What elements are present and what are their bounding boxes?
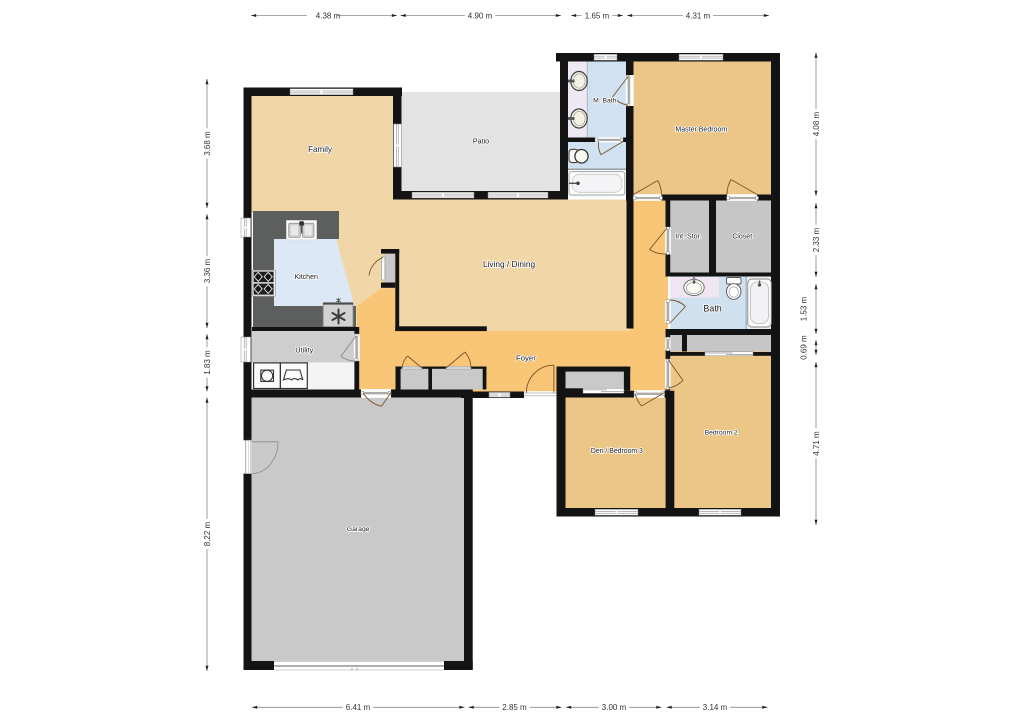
svg-text:2.85 m: 2.85 m bbox=[502, 703, 527, 712]
svg-text:4.31 m: 4.31 m bbox=[686, 11, 711, 20]
svg-text:M. Bath: M. Bath bbox=[593, 98, 617, 105]
svg-text:Patio: Patio bbox=[473, 138, 489, 146]
svg-text:1.65 m: 1.65 m bbox=[585, 11, 610, 20]
svg-text:1.53 m: 1.53 m bbox=[800, 296, 809, 321]
svg-text:2.33 m: 2.33 m bbox=[812, 227, 821, 252]
svg-text:1.83 m: 1.83 m bbox=[203, 350, 212, 375]
svg-text:Foyer: Foyer bbox=[516, 353, 536, 362]
svg-text:Bath: Bath bbox=[703, 303, 721, 313]
svg-text:4.38 m: 4.38 m bbox=[316, 11, 341, 20]
svg-text:Master Bedroom: Master Bedroom bbox=[675, 127, 727, 134]
svg-text:Den / Bedroom 3: Den / Bedroom 3 bbox=[591, 448, 643, 455]
svg-text:Family: Family bbox=[308, 145, 333, 154]
svg-text:Utility: Utility bbox=[295, 346, 313, 355]
svg-text:4.71 m: 4.71 m bbox=[812, 431, 821, 456]
svg-text:Living / Dining: Living / Dining bbox=[483, 259, 536, 269]
svg-text:8.22 m: 8.22 m bbox=[203, 521, 212, 546]
svg-text:4.08 m: 4.08 m bbox=[812, 111, 821, 136]
svg-text:4.90 m: 4.90 m bbox=[468, 11, 493, 20]
svg-text:Closet: Closet bbox=[732, 233, 752, 240]
svg-text:Bedroom 2: Bedroom 2 bbox=[705, 429, 738, 436]
svg-text:3.14 m: 3.14 m bbox=[703, 703, 728, 712]
svg-text:3.36 m: 3.36 m bbox=[203, 258, 212, 283]
svg-text:Kitchen: Kitchen bbox=[294, 274, 318, 281]
svg-text:6.41 m: 6.41 m bbox=[346, 703, 371, 712]
svg-text:Int. Stor.: Int. Stor. bbox=[675, 233, 701, 240]
svg-text:3.00 m: 3.00 m bbox=[602, 703, 627, 712]
svg-text:Garage: Garage bbox=[347, 526, 370, 533]
svg-text:0.69 m: 0.69 m bbox=[800, 335, 809, 360]
svg-text:3.68 m: 3.68 m bbox=[203, 131, 212, 156]
